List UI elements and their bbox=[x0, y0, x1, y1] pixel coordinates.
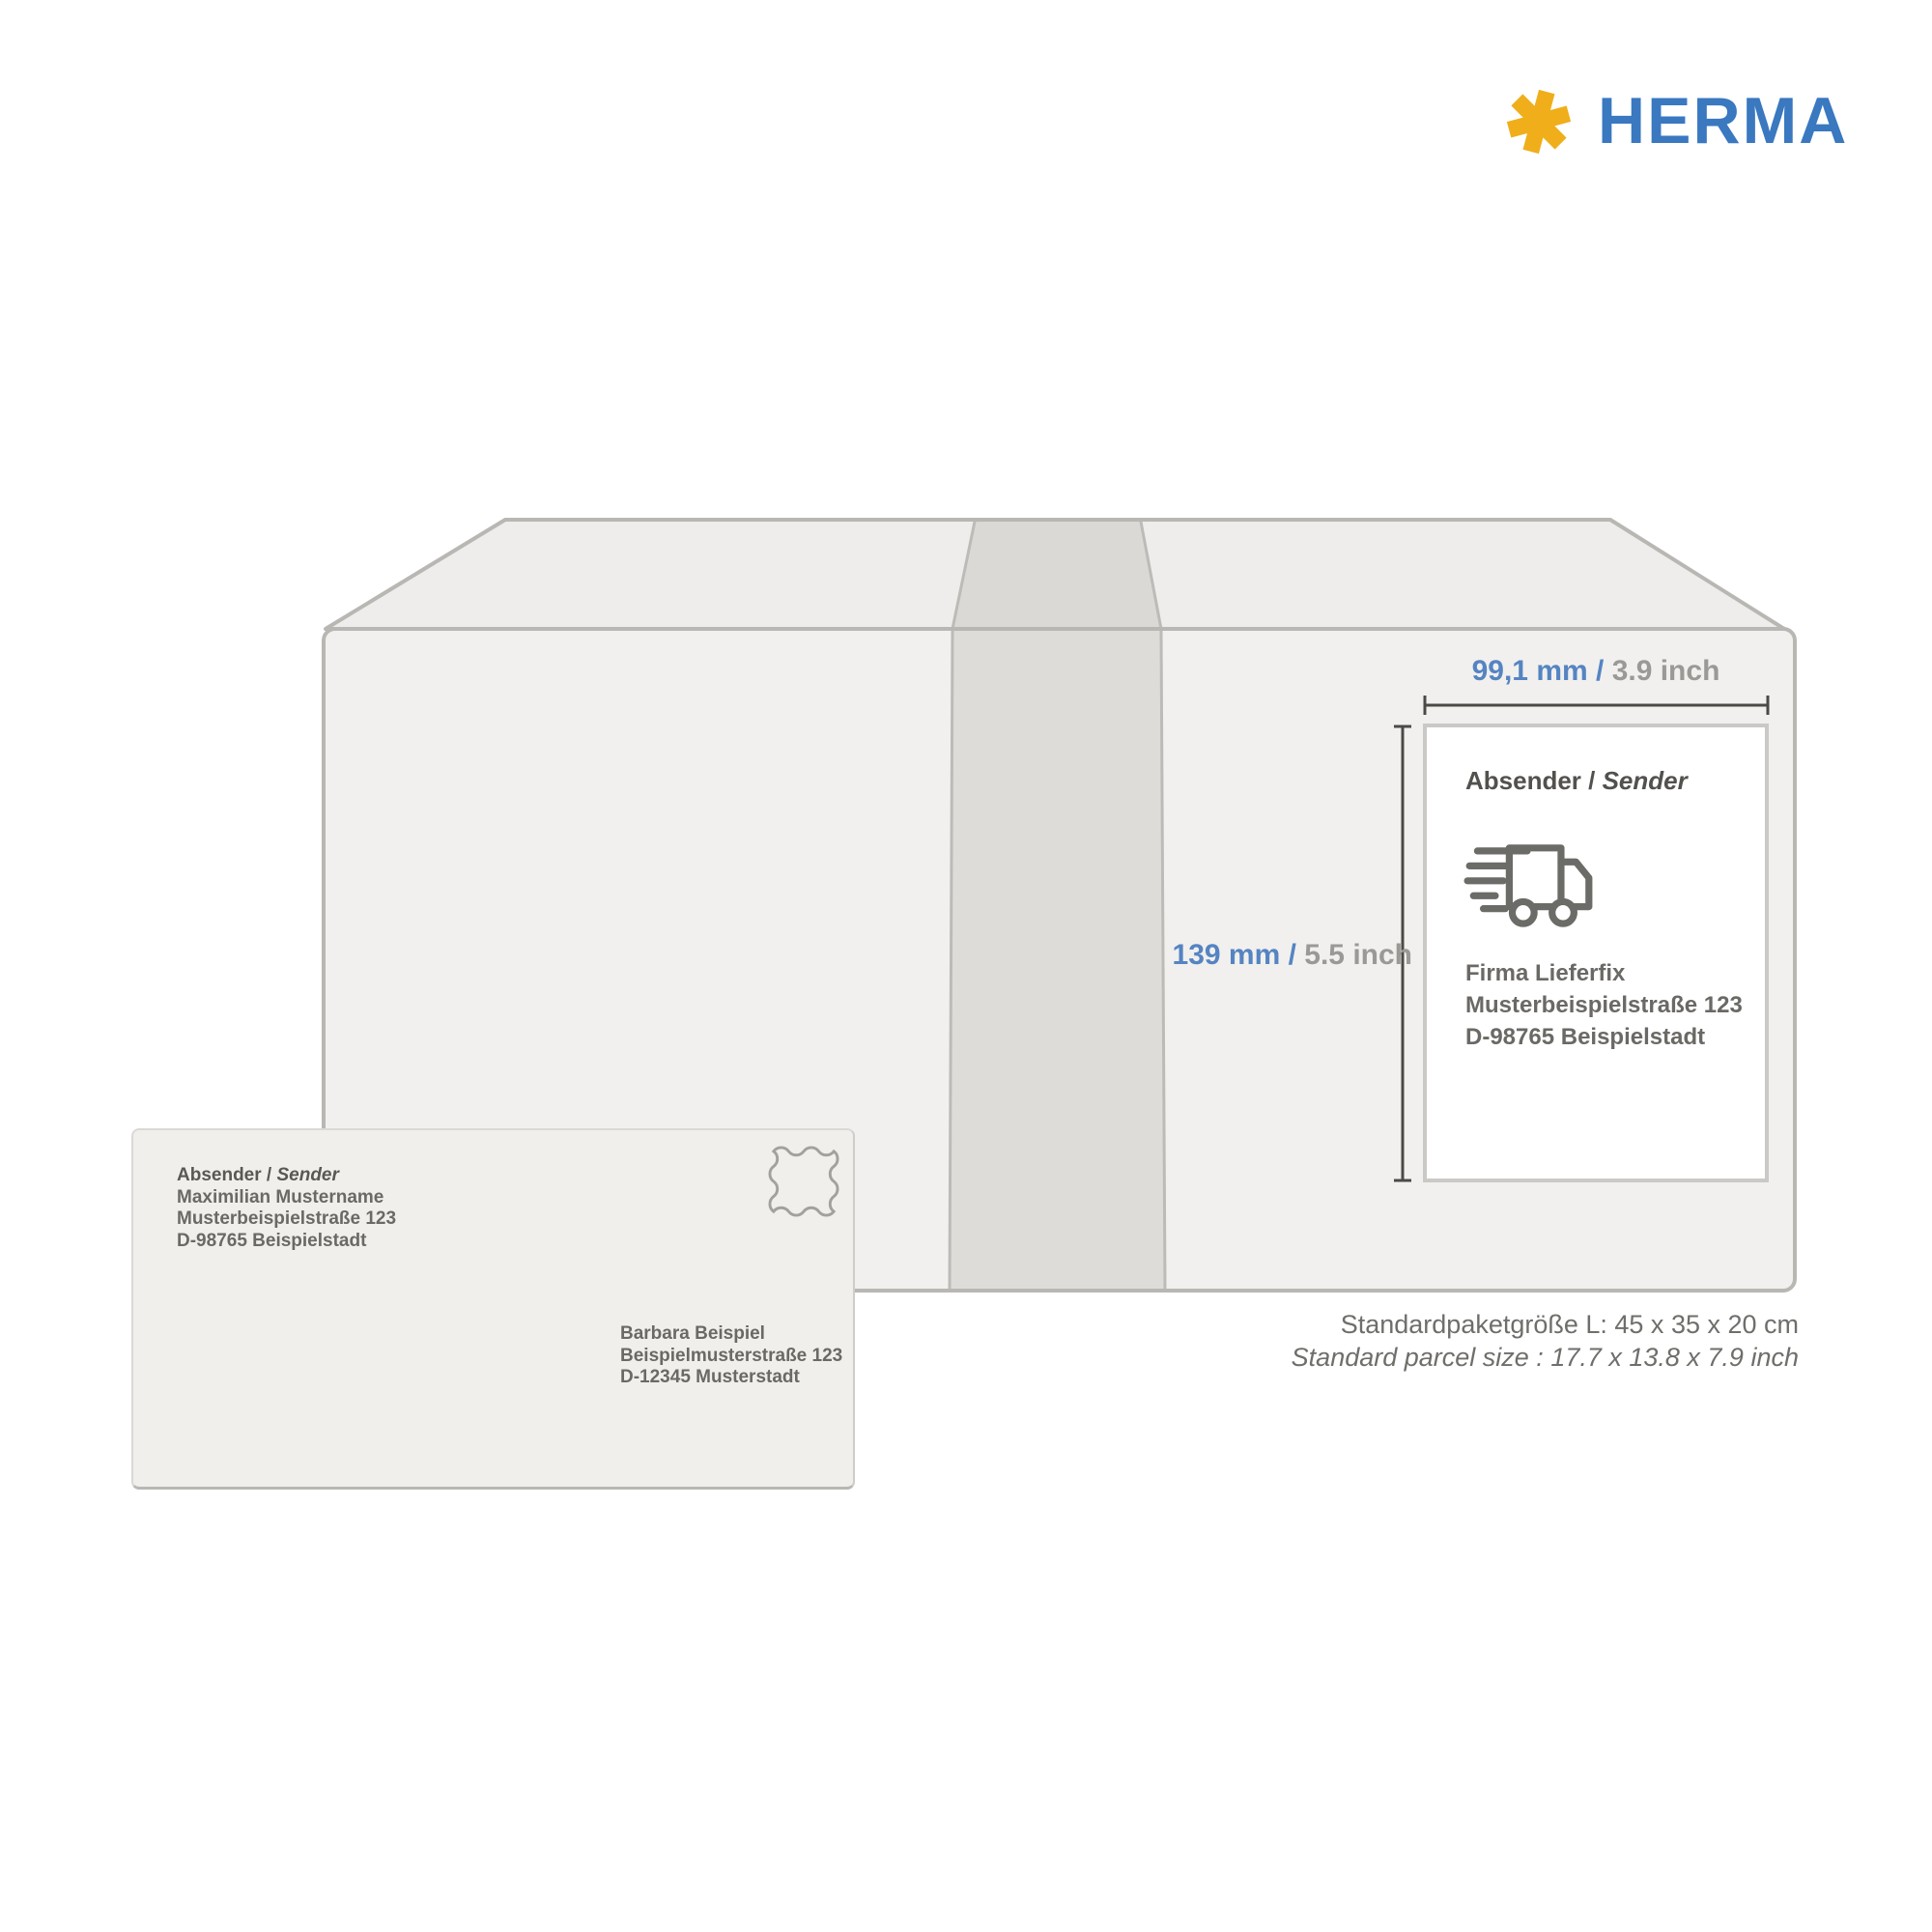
truck-wheel bbox=[1512, 901, 1534, 923]
label-header-de: Absender bbox=[1465, 766, 1581, 795]
height-imperial: 5.5 inch bbox=[1304, 939, 1412, 971]
envelope-header-de: Absender bbox=[177, 1165, 262, 1185]
herma-logo: HERMA bbox=[1505, 85, 1848, 156]
width-metric: 99,1 mm bbox=[1472, 655, 1588, 687]
label-address-line: Firma Lieferfix bbox=[1465, 957, 1743, 989]
envelope-sender-line: Maximilian Mustername bbox=[177, 1187, 396, 1209]
height-metric: 139 mm bbox=[1173, 939, 1281, 971]
shipping-label: Absender / Sender Firma Lieferfix Muster… bbox=[1423, 724, 1769, 1182]
width-imperial: 3.9 inch bbox=[1612, 655, 1720, 687]
delivery-truck-icon bbox=[1463, 841, 1595, 932]
envelope-recipient-line: Barbara Beispiel bbox=[620, 1323, 842, 1346]
stamp-outline-icon bbox=[768, 1146, 839, 1217]
truck-wheel bbox=[1552, 901, 1575, 923]
label-header-separator: / bbox=[1581, 766, 1603, 795]
envelope-recipient-block: Barbara Beispiel Beispielmusterstraße 12… bbox=[620, 1323, 842, 1389]
envelope-recipient-line: D-12345 Musterstadt bbox=[620, 1367, 842, 1389]
envelope-header-en: Sender bbox=[276, 1165, 338, 1185]
envelope-recipient-line: Beispielmusterstraße 123 bbox=[620, 1346, 842, 1368]
width-dimension-label: 99,1 mm / 3.9 inch bbox=[1423, 655, 1769, 688]
caption-line-de: Standardpaketgröße L: 45 x 35 x 20 cm bbox=[1219, 1308, 1799, 1341]
envelope-sender-line: Musterbeispielstraße 123 bbox=[177, 1208, 396, 1231]
envelope: Absender / Sender Maximilian Mustername … bbox=[131, 1128, 855, 1490]
height-dimension-label: 139 mm / 5.5 inch bbox=[1007, 939, 1412, 972]
envelope-sender-block: Absender / Sender Maximilian Mustername … bbox=[177, 1165, 396, 1252]
dimension-slash: / bbox=[1280, 939, 1304, 971]
label-address-block: Firma Lieferfix Musterbeispielstraße 123… bbox=[1465, 957, 1743, 1053]
parcel-tape-top bbox=[952, 522, 1161, 629]
truck-cargo-box bbox=[1509, 848, 1561, 907]
asterisk-logo-icon bbox=[1505, 85, 1573, 156]
envelope-header-separator: / bbox=[262, 1165, 277, 1185]
label-address-line: Musterbeispielstraße 123 bbox=[1465, 989, 1743, 1021]
label-sender-header: Absender / Sender bbox=[1465, 766, 1688, 796]
parcel-size-caption: Standardpaketgröße L: 45 x 35 x 20 cm St… bbox=[1219, 1308, 1799, 1374]
dimension-slash: / bbox=[1588, 655, 1612, 687]
label-address-line: D-98765 Beispielstadt bbox=[1465, 1021, 1743, 1053]
product-illustration: HERMA 99,1 mm / 3.9 inch 139 mm / 5.5 in… bbox=[0, 0, 1932, 1932]
brand-wordmark: HERMA bbox=[1598, 85, 1848, 156]
envelope-sender-line: D-98765 Beispielstadt bbox=[177, 1231, 396, 1253]
envelope-sender-header: Absender / Sender bbox=[177, 1165, 396, 1187]
label-header-en: Sender bbox=[1603, 766, 1688, 795]
caption-line-en: Standard parcel size : 17.7 x 13.8 x 7.9… bbox=[1219, 1341, 1799, 1374]
